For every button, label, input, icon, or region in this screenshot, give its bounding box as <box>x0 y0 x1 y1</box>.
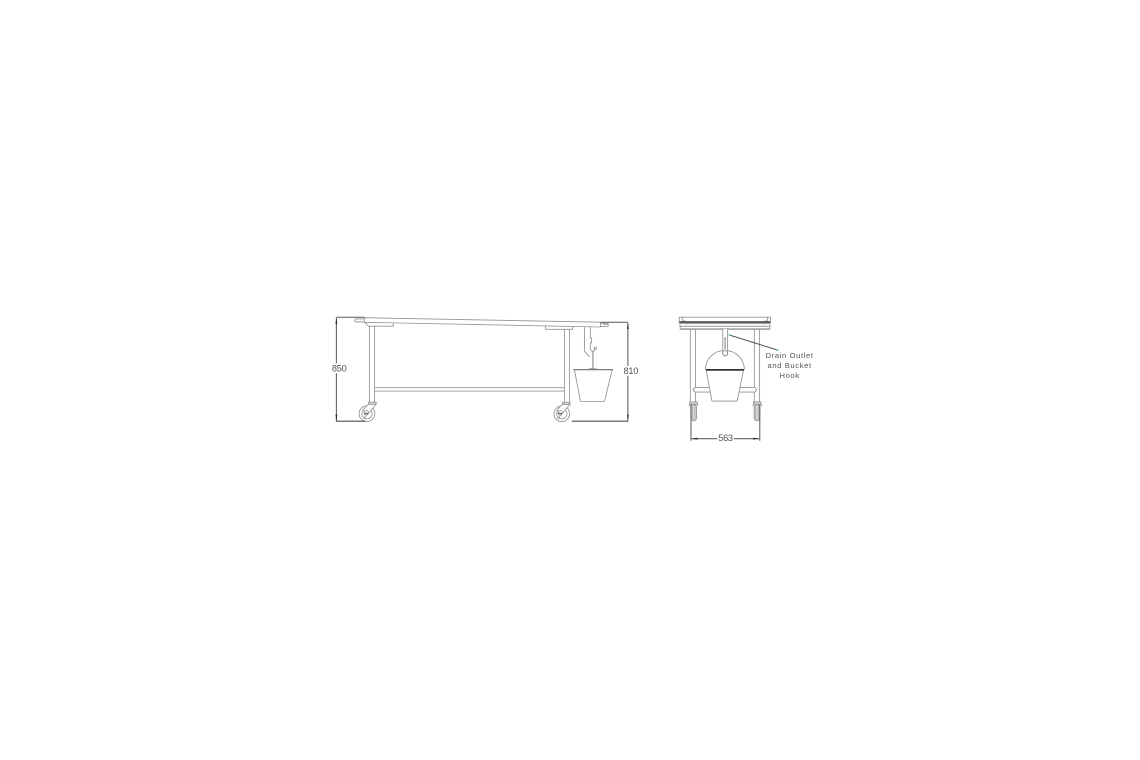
svg-text:Hook: Hook <box>779 371 799 380</box>
svg-text:850: 850 <box>332 363 347 373</box>
svg-text:and Bucket: and Bucket <box>767 361 811 370</box>
svg-text:563: 563 <box>718 433 733 443</box>
svg-text:810: 810 <box>624 366 639 376</box>
svg-text:Drain Outlet: Drain Outlet <box>766 351 814 360</box>
